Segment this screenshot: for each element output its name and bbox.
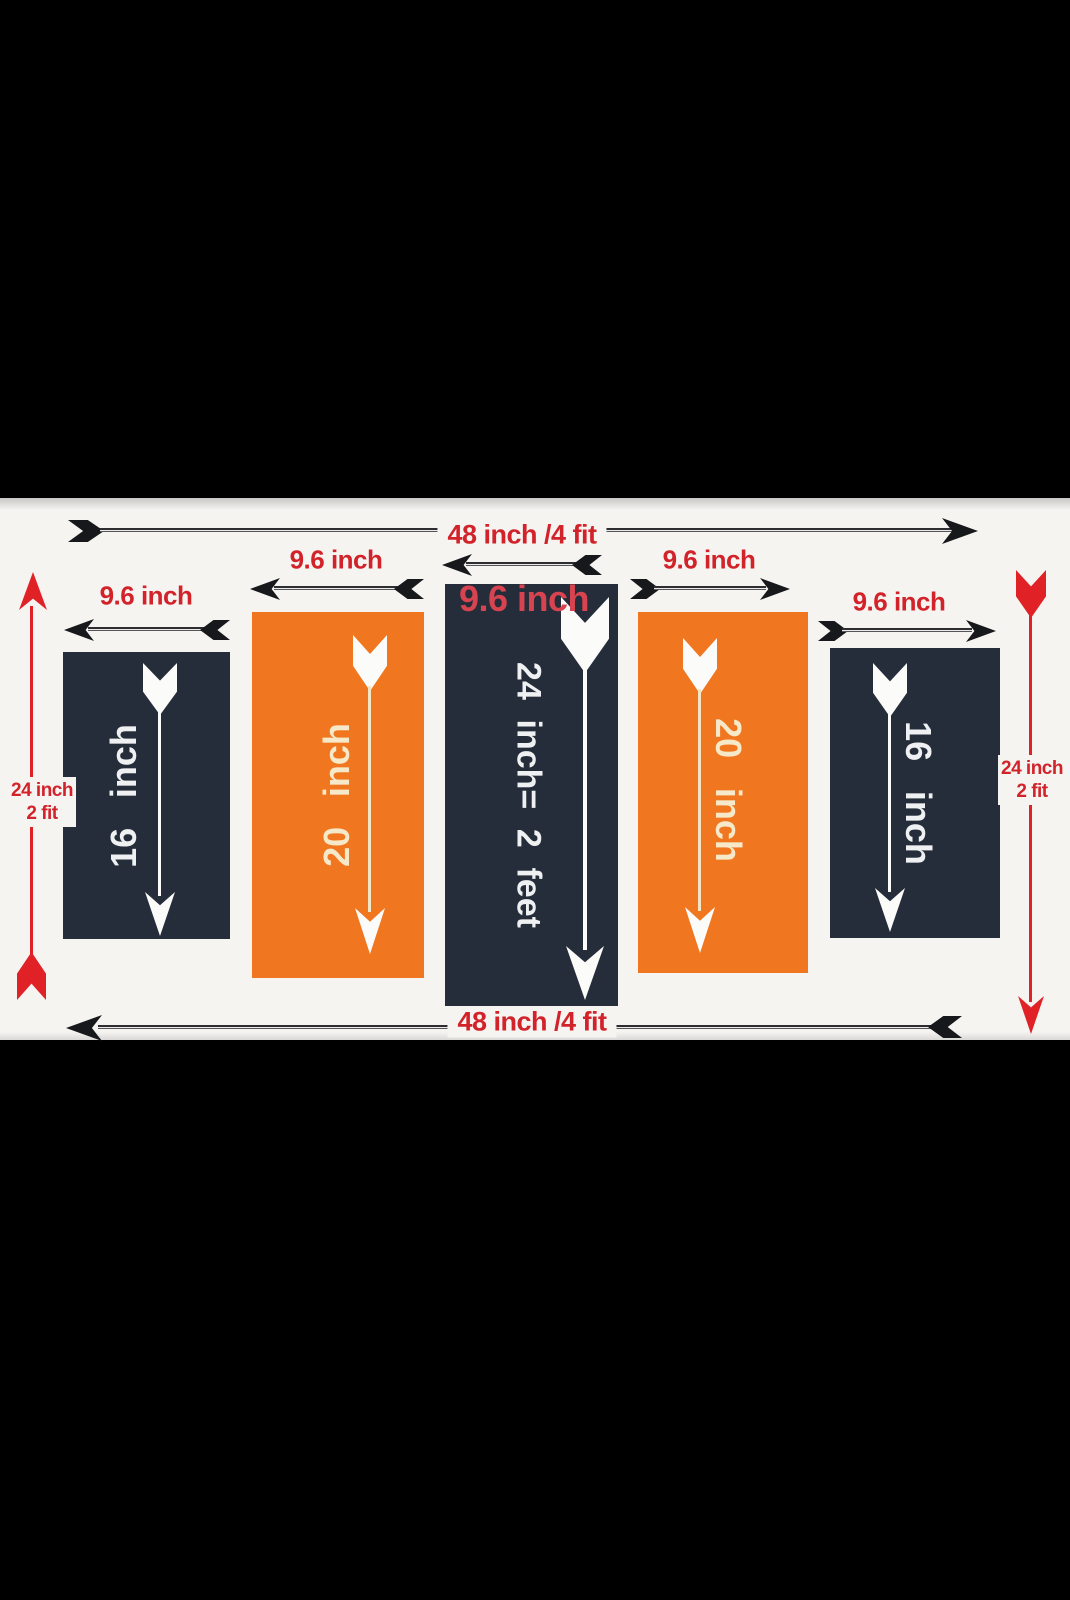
dimension-line	[654, 586, 766, 590]
panel-4-width-label: 9.6 inch	[663, 545, 756, 576]
arrowhead-down-icon	[355, 908, 385, 954]
panel-4-height-label: 20 inch	[707, 718, 749, 862]
left-dimension-label: 24 inch 2 fit	[8, 777, 76, 827]
panel-2-height-label: 20 inch	[316, 723, 358, 867]
panel-5-height-label: 16 inch	[897, 721, 939, 865]
left-dimension-line2: 2 fit	[11, 802, 73, 825]
arrow-line	[698, 689, 701, 911]
bottom-dimension-label: 48 inch /4 fit	[447, 1007, 616, 1038]
right-dimension-line1: 24 inch	[1001, 757, 1063, 780]
arrowhead-down-icon	[566, 946, 604, 1000]
right-dimension-label: 24 inch 2 fit	[998, 755, 1066, 805]
panel-3-height-label: 24 inch= 2 feet	[509, 662, 548, 928]
arrow-line	[583, 668, 587, 950]
fletching-down-icon	[143, 663, 177, 715]
panel-1: 16 inch	[63, 652, 230, 939]
dimension-line	[842, 628, 972, 632]
fletching-down-icon	[353, 635, 387, 691]
panel-3-width-label: 9.6 inch	[459, 578, 589, 620]
panel-1-height-label: 16 inch	[103, 724, 145, 868]
arrow-line	[888, 712, 891, 892]
right-dimension-line2: 2 fit	[1001, 780, 1063, 803]
panel-2-width-label: 9.6 inch	[290, 545, 383, 576]
arrow-line	[368, 686, 371, 912]
dimension-line	[1029, 614, 1032, 1002]
panel-size-diagram: 48 inch /4 fit 48 inch /4 fit 24 inch 2 …	[0, 0, 1070, 1600]
panel-5: 16 inch	[830, 648, 1000, 938]
panel-4: 20 inch	[638, 612, 808, 973]
arrowhead-down-icon	[685, 907, 715, 953]
panel-3: 24 inch= 2 feet	[445, 584, 618, 1006]
left-dimension-line1: 24 inch	[11, 779, 73, 802]
dimension-line	[274, 586, 400, 590]
dimension-line	[88, 627, 210, 631]
canvas-top-shade	[0, 498, 1070, 510]
panel-5-width-label: 9.6 inch	[853, 587, 946, 618]
arrowhead-down-icon	[145, 892, 175, 936]
arrow-line	[158, 710, 161, 896]
panel-1-width-label: 9.6 inch	[100, 581, 193, 612]
fletching-down-icon	[683, 638, 717, 694]
dimension-line	[466, 562, 578, 566]
fletching-down-icon	[873, 663, 907, 717]
panel-2: 20 inch	[252, 612, 424, 978]
arrowhead-down-icon	[875, 888, 905, 932]
top-dimension-label: 48 inch /4 fit	[437, 520, 606, 551]
